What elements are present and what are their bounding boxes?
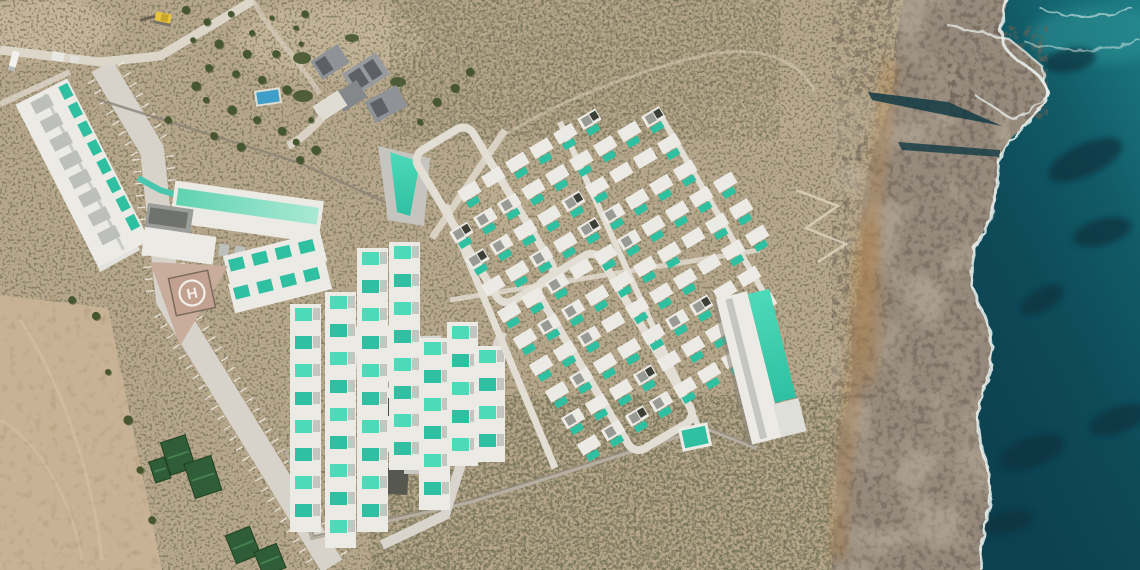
olive-tree bbox=[278, 127, 287, 136]
olive-tree bbox=[92, 312, 100, 320]
unit-pool bbox=[452, 354, 469, 367]
unit-pool bbox=[479, 350, 496, 363]
unit-roof bbox=[348, 492, 355, 504]
unit-pool bbox=[424, 426, 441, 439]
service-cube bbox=[218, 243, 230, 256]
unit-pool bbox=[394, 442, 411, 455]
unit-pool bbox=[295, 336, 312, 349]
unit-pool bbox=[362, 392, 379, 405]
olive-tree bbox=[301, 10, 308, 17]
olive-tree bbox=[148, 516, 156, 524]
olive-tree bbox=[258, 76, 266, 84]
olive-tree bbox=[293, 25, 298, 30]
unit-pool bbox=[362, 448, 379, 461]
olive-tree bbox=[191, 81, 200, 90]
unit-pool bbox=[330, 492, 347, 505]
olive-tree bbox=[182, 6, 190, 14]
aerial-resort-photo: H bbox=[0, 0, 1140, 570]
unit-roof bbox=[348, 296, 355, 308]
unit-pool bbox=[330, 520, 347, 533]
olive-tree bbox=[214, 39, 223, 48]
unit-roof bbox=[348, 436, 355, 448]
unit-roof bbox=[497, 378, 504, 390]
unit-pool bbox=[330, 352, 347, 365]
unit-pool bbox=[424, 370, 441, 383]
olive-tree bbox=[417, 119, 423, 125]
unit-pool bbox=[295, 308, 312, 321]
unit-pool bbox=[362, 308, 379, 321]
unit-pool bbox=[362, 476, 379, 489]
unit-pool bbox=[479, 434, 496, 447]
unit-roof bbox=[380, 308, 387, 320]
unit-roof bbox=[348, 380, 355, 392]
unit-roof bbox=[497, 434, 504, 446]
unit-roof bbox=[412, 302, 419, 314]
unit-pool bbox=[330, 408, 347, 421]
parking-stripe bbox=[137, 207, 145, 208]
unit-pool bbox=[394, 274, 411, 287]
unit-pool bbox=[424, 342, 441, 355]
parking-stripe bbox=[143, 267, 151, 268]
olive-tree bbox=[228, 11, 234, 17]
scene-canvas: H bbox=[0, 0, 1140, 570]
parking-stripe bbox=[135, 183, 143, 184]
parking-stripe bbox=[167, 168, 175, 169]
unit-pool bbox=[362, 364, 379, 377]
unit-roof bbox=[497, 406, 504, 418]
unit-roof bbox=[348, 464, 355, 476]
olive-tree bbox=[203, 97, 209, 103]
unit-roof bbox=[348, 520, 355, 532]
unit-pool bbox=[362, 504, 379, 517]
garden-shrub bbox=[390, 77, 406, 87]
olive-tree bbox=[308, 117, 314, 123]
unit-roof bbox=[380, 280, 387, 292]
unit-roof bbox=[348, 352, 355, 364]
garden-shrub bbox=[293, 90, 313, 102]
unit-roof bbox=[470, 326, 477, 338]
unit-roof bbox=[380, 476, 387, 488]
garden-shrub bbox=[345, 34, 359, 42]
unit-pool bbox=[362, 280, 379, 293]
unit-roof bbox=[348, 324, 355, 336]
unit-roof bbox=[313, 336, 320, 348]
unit-pool bbox=[295, 420, 312, 433]
olive-tree bbox=[311, 145, 320, 154]
olive-tree bbox=[203, 18, 210, 25]
unit-pool bbox=[394, 414, 411, 427]
unit-pool bbox=[452, 410, 469, 423]
unit-roof bbox=[380, 392, 387, 404]
olive-tree bbox=[296, 156, 304, 164]
parking-stripe bbox=[168, 180, 176, 181]
unit-pool bbox=[452, 382, 469, 395]
unit-roof bbox=[313, 392, 320, 404]
unit-pool bbox=[479, 378, 496, 391]
unit-roof bbox=[313, 308, 320, 320]
olive-tree bbox=[227, 105, 236, 114]
unit-roof bbox=[313, 448, 320, 460]
olive-tree bbox=[164, 116, 171, 123]
orange-soil bbox=[854, 210, 882, 390]
olive-tree bbox=[269, 15, 274, 20]
olive-tree bbox=[68, 296, 76, 304]
unit-roof bbox=[380, 252, 387, 264]
olive-tree bbox=[123, 415, 132, 424]
unit-pool bbox=[424, 482, 441, 495]
unit-roof bbox=[313, 420, 320, 432]
olive-tree bbox=[105, 369, 111, 375]
unit-pool bbox=[394, 386, 411, 399]
parking-stripe bbox=[166, 156, 174, 157]
olive-tree bbox=[232, 70, 240, 78]
olive-tree bbox=[293, 139, 300, 146]
olive-tree bbox=[243, 50, 252, 59]
unit-pool bbox=[295, 392, 312, 405]
unit-roof bbox=[380, 336, 387, 348]
parking-stripe bbox=[132, 159, 140, 160]
unit-pool bbox=[330, 324, 347, 337]
parking-stripe bbox=[146, 291, 154, 292]
unit-roof bbox=[348, 408, 355, 420]
olive-tree bbox=[298, 41, 303, 46]
unit-roof bbox=[442, 482, 449, 494]
unit-pool bbox=[424, 454, 441, 467]
olive-tree bbox=[190, 37, 196, 43]
unit-roof bbox=[313, 476, 320, 488]
garden-shrub bbox=[293, 52, 311, 64]
unit-pool bbox=[452, 438, 469, 451]
parking-stripe bbox=[136, 195, 144, 196]
unit-pool bbox=[394, 302, 411, 315]
unit-pool bbox=[394, 246, 411, 259]
unit-roof bbox=[412, 246, 419, 258]
unit-pool bbox=[479, 406, 496, 419]
unit-pool bbox=[295, 448, 312, 461]
parking-stripe bbox=[133, 171, 141, 172]
excavator-cab bbox=[160, 14, 168, 22]
olive-tree bbox=[272, 50, 280, 58]
unit-pool bbox=[295, 476, 312, 489]
unit-roof bbox=[412, 442, 419, 454]
unit-pool bbox=[452, 326, 469, 339]
unit-roof bbox=[412, 358, 419, 370]
olive-tree bbox=[451, 84, 460, 93]
olive-tree bbox=[249, 30, 255, 36]
olive-tree bbox=[210, 132, 218, 140]
olive-tree bbox=[205, 64, 213, 72]
unit-pool bbox=[330, 296, 347, 309]
unit-roof bbox=[412, 414, 419, 426]
unit-roof bbox=[412, 330, 419, 342]
unit-roof bbox=[380, 448, 387, 460]
olive-tree bbox=[237, 143, 246, 152]
shed bbox=[51, 51, 64, 62]
unit-pool bbox=[394, 330, 411, 343]
shed bbox=[69, 55, 79, 63]
unit-pool bbox=[295, 364, 312, 377]
unit-pool bbox=[362, 252, 379, 265]
unit-roof bbox=[412, 274, 419, 286]
unit-pool bbox=[330, 380, 347, 393]
unit-pool bbox=[394, 358, 411, 371]
unit-roof bbox=[380, 504, 387, 516]
unit-roof bbox=[313, 364, 320, 376]
unit-roof bbox=[380, 420, 387, 432]
olive-tree bbox=[433, 98, 442, 107]
parking-stripe bbox=[138, 219, 146, 220]
unit-roof bbox=[412, 386, 419, 398]
unit-pool bbox=[424, 398, 441, 411]
unit-roof bbox=[313, 504, 320, 516]
unit-pool bbox=[362, 420, 379, 433]
olive-tree bbox=[466, 68, 474, 76]
unit-pool bbox=[362, 336, 379, 349]
unit-pool bbox=[330, 436, 347, 449]
unit-pool bbox=[295, 504, 312, 517]
olive-tree bbox=[253, 116, 261, 124]
olive-tree bbox=[282, 85, 291, 94]
parking-stripe bbox=[145, 279, 153, 280]
unit-pool bbox=[330, 464, 347, 477]
unit-roof bbox=[380, 364, 387, 376]
olive-tree bbox=[136, 466, 143, 473]
